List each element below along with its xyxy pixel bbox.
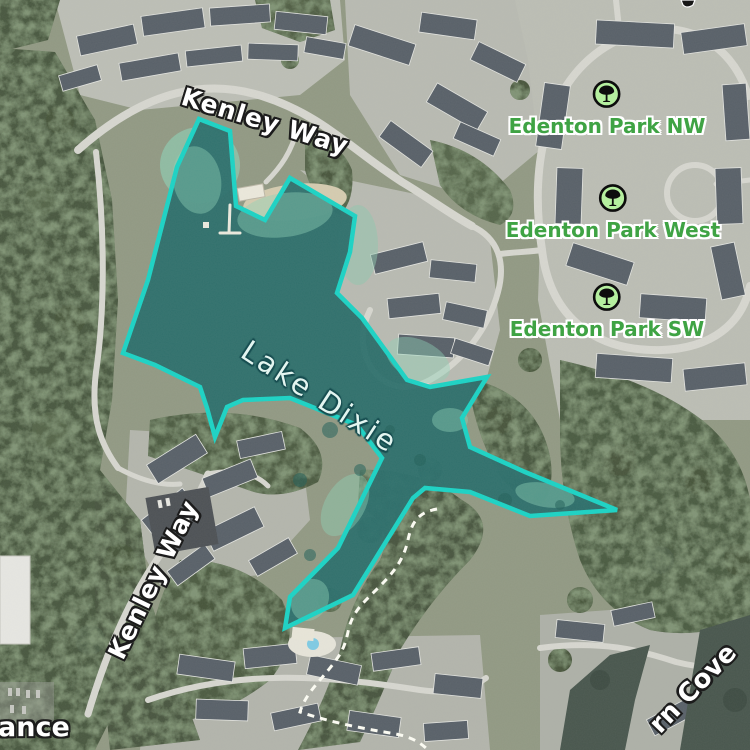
partial-label-entrance: ance [0, 714, 70, 741]
park-label: Edenton Park SW [510, 317, 705, 341]
satellite-map[interactable]: Kenley Way Kenley Way Lake Dixie Edenton… [0, 0, 750, 750]
park-label: Edenton Park NW [509, 114, 706, 138]
park-marker-edenton-nw[interactable]: Edenton Park NW [509, 79, 706, 138]
tree-icon [592, 282, 622, 312]
tree-icon [592, 79, 622, 109]
park-marker-edenton-sw[interactable]: Edenton Park SW [510, 282, 705, 341]
partial-label-text: ance [0, 712, 70, 743]
park-marker-edenton-west[interactable]: Edenton Park West [506, 183, 720, 242]
tree-icon [598, 183, 628, 213]
park-label: Edenton Park West [506, 218, 720, 242]
